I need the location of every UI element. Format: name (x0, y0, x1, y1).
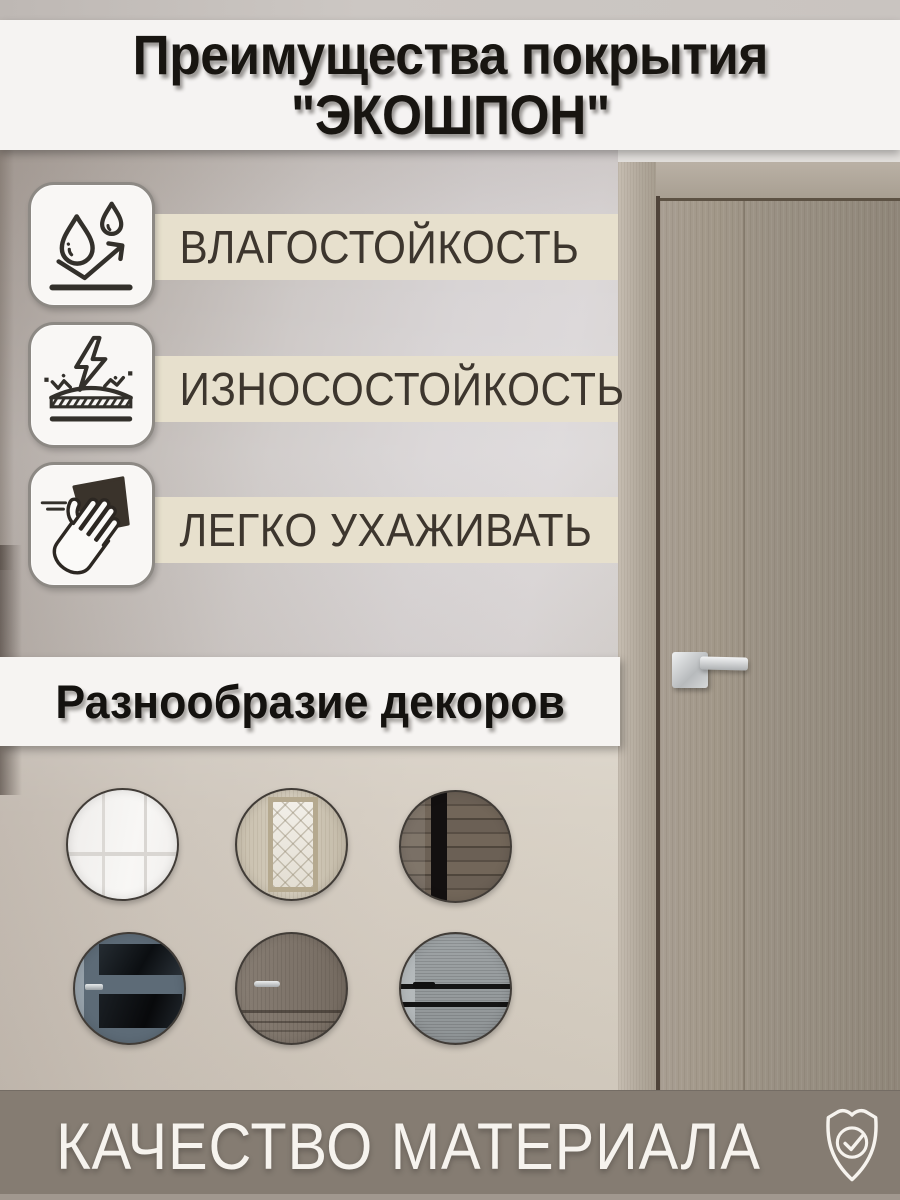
water-drops-arrow-icon (38, 191, 144, 297)
door-leaf-seam (743, 201, 745, 1090)
decor-circle-gray-wood-door (235, 932, 348, 1045)
icon-card-easy-care (28, 462, 155, 588)
ornate-glass-panel (268, 797, 318, 893)
page-title-line1: Преимущества покрытия (132, 25, 767, 85)
decors-banner-label: Разнообразие декоров (55, 674, 565, 729)
dark-glass-pane (99, 944, 182, 976)
title-banner: Преимущества покрытия "ЭКОШПОН" (0, 20, 900, 150)
door-handle-lever (700, 656, 748, 670)
feature-strip-wear: ИЗНОСОСТОЙКОСТЬ (150, 356, 618, 422)
feature-strip-easy-care: ЛЕГКО УХАЖИВАТЬ (150, 497, 618, 563)
door-handle (413, 982, 435, 989)
decor-circle-rustic-door (399, 790, 512, 903)
decor-circle-white-classic-door (66, 788, 179, 901)
dark-glass-pane (99, 994, 182, 1028)
shield-check-icon (821, 1106, 883, 1186)
door-photo (618, 150, 900, 1090)
decors-banner: Разнообразие декоров (0, 657, 620, 746)
feature-label-wear: ИЗНОСОСТОЙКОСТЬ (150, 362, 625, 416)
feature-label-easy-care: ЛЕГКО УХАЖИВАТЬ (150, 503, 592, 557)
footer-band: КАЧЕСТВО МАТЕРИАЛА (0, 1090, 900, 1200)
footer-bottom-edge (0, 1194, 900, 1200)
page-title-line2: "ЭКОШПОН" (291, 85, 610, 145)
hand-wiping-cloth-icon (38, 471, 144, 577)
door-frame-jamb (618, 162, 656, 1090)
icon-card-moisture (28, 182, 155, 308)
quality-label: КАЧЕСТВО МАТЕРИАЛА (57, 1108, 762, 1184)
ecoshpon-promo-image: Преимущества покрытия "ЭКОШПОН" ВЛАГОСТО… (0, 0, 900, 1200)
door-leaf (660, 201, 900, 1090)
icon-card-wear (28, 322, 155, 448)
wall-left-shadow (0, 150, 14, 570)
decor-circle-blue-gray-door (73, 932, 186, 1045)
decor-circle-ash-gray-door (399, 932, 512, 1045)
door-frame-top (618, 162, 900, 201)
door-handle (85, 984, 104, 989)
feature-strip-moisture: ВЛАГОСТОЙКОСТЬ (150, 214, 618, 280)
decor-circle-glass-door (235, 788, 348, 901)
feature-label-moisture: ВЛАГОСТОЙКОСТЬ (150, 220, 579, 274)
lightning-impact-surface-icon (38, 331, 144, 437)
door-handle (254, 981, 279, 987)
wall-top-strip (0, 0, 900, 22)
